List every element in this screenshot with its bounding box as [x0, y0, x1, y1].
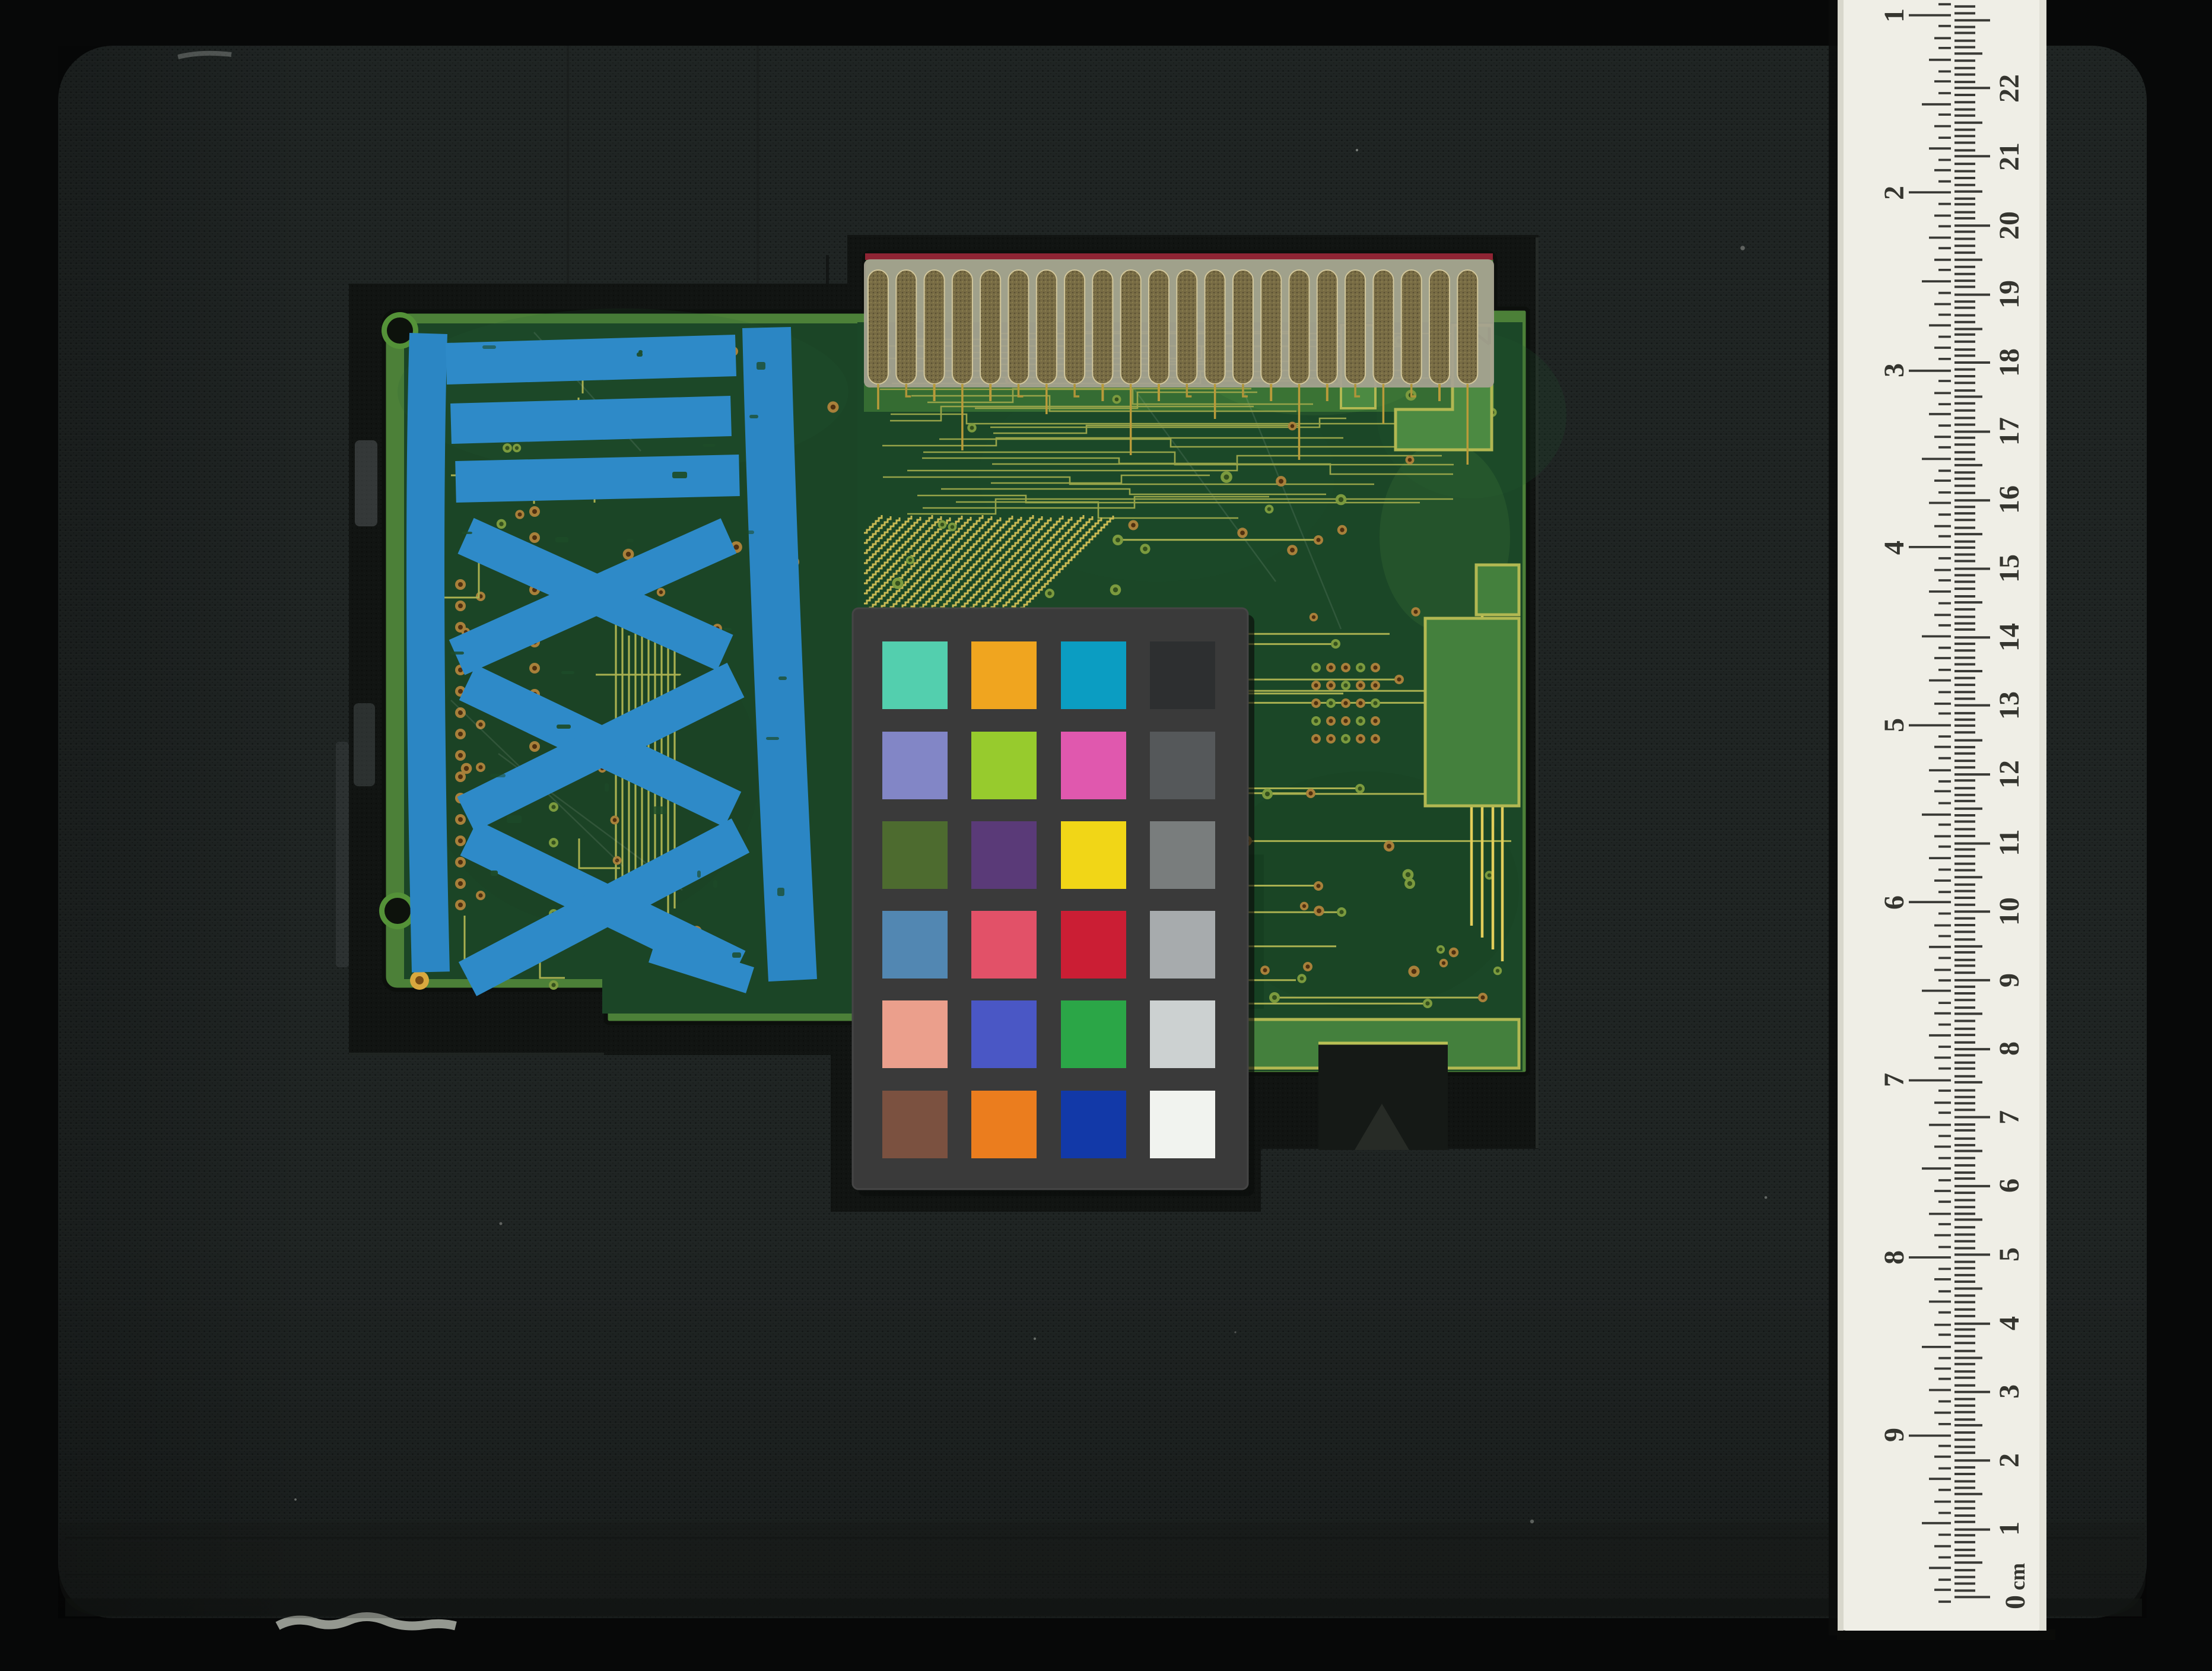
- svg-text:8: 8: [1994, 1041, 2025, 1056]
- svg-text:2: 2: [1994, 1453, 2025, 1467]
- svg-text:9: 9: [1879, 1428, 1910, 1442]
- svg-text:14: 14: [1994, 623, 2025, 652]
- svg-text:17: 17: [1994, 417, 2025, 446]
- svg-text:20: 20: [1994, 211, 2025, 240]
- svg-text:21: 21: [1994, 142, 2025, 171]
- svg-text:3: 3: [1994, 1384, 2025, 1399]
- svg-text:6: 6: [1879, 895, 1910, 910]
- svg-text:7: 7: [1879, 1073, 1910, 1087]
- svg-text:9: 9: [1994, 973, 2025, 987]
- svg-text:13: 13: [1994, 691, 2025, 720]
- svg-text:22: 22: [1994, 74, 2025, 103]
- svg-text:1: 1: [1994, 1521, 2025, 1536]
- svg-text:2: 2: [1879, 186, 1910, 200]
- svg-text:11: 11: [1994, 829, 2025, 856]
- svg-text:12: 12: [1994, 760, 2025, 789]
- svg-text:10: 10: [1994, 897, 2025, 926]
- svg-text:4: 4: [1879, 541, 1910, 555]
- svg-text:4: 4: [1994, 1316, 2025, 1330]
- svg-text:16: 16: [1994, 485, 2025, 514]
- svg-text:18: 18: [1994, 348, 2025, 377]
- svg-text:7: 7: [1994, 1110, 2025, 1124]
- svg-text:5: 5: [1994, 1247, 2025, 1262]
- svg-text:15: 15: [1994, 554, 2025, 583]
- svg-text:5: 5: [1879, 718, 1910, 732]
- svg-text:1: 1: [1879, 8, 1910, 23]
- svg-text:3: 3: [1879, 363, 1910, 377]
- svg-text:19: 19: [1994, 280, 2025, 309]
- svg-text:8: 8: [1879, 1250, 1910, 1265]
- svg-text:6: 6: [1994, 1178, 2025, 1193]
